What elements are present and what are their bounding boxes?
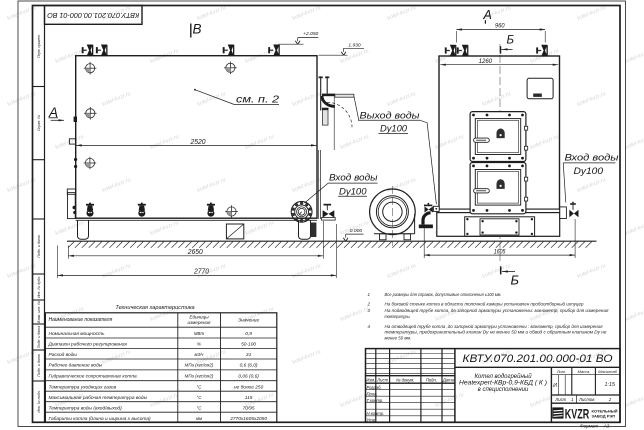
svg-text:Взам. инв. №: Взам. инв. №: [37, 301, 41, 323]
svg-text:Лист: Лист: [376, 377, 388, 382]
svg-text:2650: 2650: [187, 249, 203, 256]
svg-text:Значение: Значение: [238, 318, 259, 324]
svg-text:Температура уходящих газов: Температура уходящих газов: [49, 384, 117, 390]
svg-text:В: В: [193, 22, 202, 37]
svg-text:Диапазон рабочего регулировани: Диапазон рабочего регулирования: [48, 342, 128, 348]
svg-text:Вход воды: Вход воды: [329, 173, 378, 183]
svg-text:№ докум.: № докум.: [396, 377, 414, 382]
svg-text:Гидравлическое сопротивление к: Гидравлическое сопротивление котла: [49, 374, 137, 380]
svg-text:Максимальная рабочая температу: Максимальная рабочая температура воды: [49, 395, 148, 401]
svg-text:см. п. 2: см. п. 2: [236, 95, 280, 106]
svg-text:Наименование показателя: Наименование показателя: [49, 317, 113, 323]
svg-text:2520: 2520: [190, 139, 206, 146]
svg-text:На отводящей трубе котла ,до з: На отводящей трубе котла ,до запорной ар…: [385, 324, 604, 329]
svg-text:Перв. примен.: Перв. примен.: [37, 34, 41, 58]
svg-text:1.930: 1.930: [348, 43, 361, 49]
svg-text:МПа (кгс/см2): МПа (кгс/см2): [185, 363, 214, 368]
svg-text:Разраб.: Разраб.: [367, 385, 382, 390]
svg-text:Номинальная мощность: Номинальная мощность: [49, 331, 106, 337]
svg-text:%: %: [197, 342, 201, 347]
svg-text:На подводящей трубе котла, до: На подводящей трубе котла, до запорной а…: [385, 308, 610, 313]
svg-text:0,9: 0,9: [245, 331, 252, 337]
svg-text:Рабочее давление воды: Рабочее давление воды: [49, 363, 103, 369]
svg-text:Температура воды (вход/выход): Температура воды (вход/выход): [49, 405, 123, 411]
svg-text:Б: Б: [507, 35, 515, 47]
svg-text:Выход воды: Выход воды: [360, 110, 420, 120]
svg-text:мм: мм: [196, 416, 202, 421]
svg-text:2770х1605х2050: 2770х1605х2050: [229, 416, 267, 422]
svg-text:Dy100: Dy100: [574, 166, 604, 176]
svg-text:температуры.: температуры.: [385, 314, 411, 319]
svg-text:Котел водогрейный: Котел водогрейный: [474, 373, 532, 380]
svg-text:А: А: [483, 8, 492, 22]
svg-text:Все размеры для справок, допус: Все размеры для справок, допустимые откл…: [385, 292, 502, 297]
svg-text:Подп. и дата: Подп. и дата: [37, 235, 41, 258]
svg-text:Справ. №: Справ. №: [37, 115, 41, 131]
svg-text:Расход воды: Расход воды: [49, 352, 78, 358]
svg-text:KVZR: KVZR: [565, 405, 590, 421]
svg-text:0.000: 0.000: [350, 228, 363, 234]
svg-text:Формат: Формат: [580, 423, 598, 428]
svg-text:Вход воды: Вход воды: [565, 152, 619, 162]
svg-text:Лит.: Лит.: [556, 369, 566, 374]
svg-text:Габариты котла (длина и ширина: Габариты котла (длина и ширина х высота): [49, 416, 152, 422]
svg-text:Масштаб: Масштаб: [598, 369, 617, 374]
svg-text:Масса: Масса: [578, 369, 591, 374]
svg-text:измерения: измерения: [188, 320, 212, 325]
svg-text:Подп.: Подп.: [426, 377, 437, 382]
svg-text:°С: °С: [197, 405, 203, 410]
svg-text:0,06 (0,6): 0,06 (0,6): [238, 374, 259, 380]
svg-text:70/95: 70/95: [243, 405, 255, 411]
svg-text:Инв. № подл.: Инв. № подл.: [37, 390, 41, 412]
svg-text:Подп. и дата: Подп. и дата: [37, 354, 41, 377]
svg-text:Б: Б: [511, 273, 520, 288]
svg-text:Подп. и дата: Подп. и дата: [37, 326, 41, 349]
svg-text:Техническая характеристика: Техническая характеристика: [115, 305, 194, 311]
svg-text:1260: 1260: [479, 58, 493, 65]
svg-text:не более 250: не более 250: [234, 384, 264, 390]
svg-text:1:15: 1:15: [605, 382, 616, 388]
svg-text:И: И: [553, 383, 557, 389]
svg-text:ЗАВОД РЭП: ЗАВОД РЭП: [592, 414, 616, 419]
svg-text:м3/ч: м3/ч: [195, 352, 205, 357]
svg-text:Пров.: Пров.: [367, 391, 378, 396]
svg-text:+2.050: +2.050: [303, 31, 318, 37]
svg-text:Изм.: Изм.: [366, 377, 375, 382]
svg-text:Dy100: Dy100: [339, 186, 367, 196]
svg-text:0,6 (6,0): 0,6 (6,0): [240, 363, 258, 369]
svg-text:в специсполнении: в специсполнении: [478, 387, 529, 393]
svg-text:1: 1: [571, 397, 573, 402]
svg-text:115: 115: [245, 395, 253, 401]
svg-text:А3: А3: [603, 423, 610, 428]
svg-text:50-100: 50-100: [241, 342, 256, 348]
svg-text:Инв. № дубл.: Инв. № дубл.: [37, 276, 41, 298]
svg-text:Н.контр.: Н.контр.: [367, 411, 385, 416]
svg-text:На боковой стенке котла в обла: На боковой стенке котла в области топочн…: [385, 302, 585, 307]
svg-text:Единицы: Единицы: [189, 314, 209, 319]
svg-text:МПа (кгс/см2): МПа (кгс/см2): [185, 374, 214, 379]
svg-text:КВТУ.070.201.00.000-01 ВО: КВТУ.070.201.00.000-01 ВО: [47, 11, 139, 20]
svg-text:Дата: Дата: [442, 377, 455, 382]
svg-text:1605: 1605: [494, 249, 506, 256]
svg-text:Лист: Лист: [554, 397, 566, 402]
svg-text:2770: 2770: [193, 269, 209, 276]
svg-text:Dy100: Dy100: [380, 124, 408, 134]
svg-text:КВТУ.070.201.00.000-01 ВО: КВТУ.070.201.00.000-01 ВО: [463, 353, 613, 365]
svg-text:°С: °С: [197, 384, 203, 389]
svg-text:960: 960: [495, 22, 505, 29]
svg-text:МВт: МВт: [194, 331, 205, 336]
svg-text:менее 50 мм.: менее 50 мм.: [385, 335, 412, 340]
svg-text:Heatexpert-КВр-0,9-КБД ( К ): Heatexpert-КВр-0,9-КБД ( К ): [459, 381, 547, 387]
svg-text:31: 31: [246, 352, 252, 358]
svg-text:Листов: Листов: [578, 397, 595, 402]
svg-text:2: 2: [367, 302, 371, 307]
svg-text:°С: °С: [197, 395, 203, 400]
svg-text:температуры, предохранительный: температуры, предохранительный клапан Dу…: [385, 330, 608, 335]
svg-text:Т.контр.: Т.контр.: [367, 398, 384, 403]
svg-text:Утв.: Утв.: [367, 417, 377, 422]
